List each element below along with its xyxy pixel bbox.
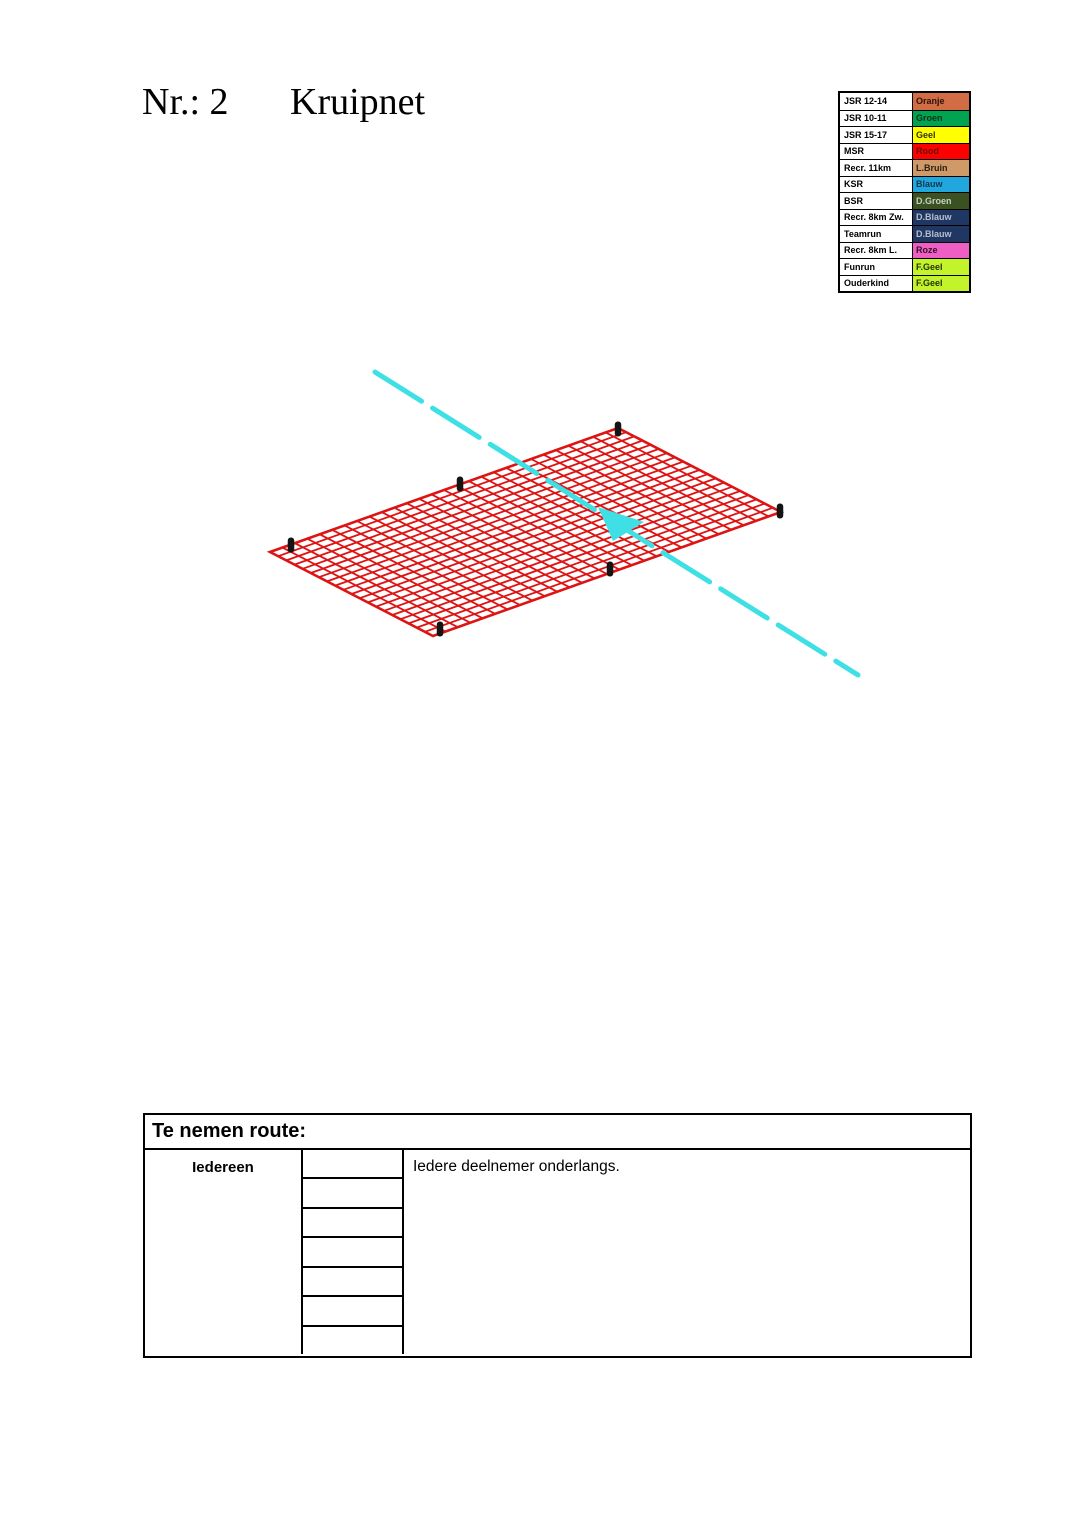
course-diagram bbox=[250, 340, 890, 700]
legend-color-swatch: Groen bbox=[913, 111, 969, 127]
legend-color-swatch: F.Geel bbox=[913, 259, 969, 275]
legend-category-label: BSR bbox=[840, 193, 913, 209]
net-grid bbox=[270, 428, 781, 636]
legend-category-label: KSR bbox=[840, 177, 913, 193]
legend-row: OuderkindF.Geel bbox=[840, 275, 969, 292]
route-color-cell bbox=[303, 1179, 402, 1208]
route-color-cell bbox=[303, 1297, 402, 1326]
legend-row: TeamrunD.Blauw bbox=[840, 225, 969, 242]
legend-category-label: MSR bbox=[840, 144, 913, 160]
legend-row: KSRBlauw bbox=[840, 176, 969, 193]
net-post-icon bbox=[777, 504, 784, 519]
legend-row: FunrunF.Geel bbox=[840, 258, 969, 275]
route-color-cell bbox=[303, 1238, 402, 1267]
legend-row: JSR 10-11Groen bbox=[840, 110, 969, 127]
legend-color-swatch: Roze bbox=[913, 243, 969, 259]
legend-color-swatch: D.Blauw bbox=[913, 210, 969, 226]
net-post-icon bbox=[457, 477, 464, 492]
route-color-cell bbox=[303, 1327, 402, 1354]
net-post-icon bbox=[437, 622, 444, 637]
route-color-cell bbox=[303, 1209, 402, 1238]
legend-row: Recr. 11kmL.Bruin bbox=[840, 159, 969, 176]
legend-category-label: Recr. 11km bbox=[840, 160, 913, 176]
legend-category-label: Ouderkind bbox=[840, 276, 913, 292]
legend-category-label: JSR 10-11 bbox=[840, 111, 913, 127]
net-post-icon bbox=[607, 562, 614, 577]
route-description: Iedere deelnemer onderlangs. bbox=[404, 1150, 970, 1354]
net-post-icon bbox=[288, 538, 295, 553]
legend-row: Recr. 8km L.Roze bbox=[840, 242, 969, 259]
legend-color-swatch: D.Blauw bbox=[913, 226, 969, 242]
legend-category-label: Funrun bbox=[840, 259, 913, 275]
legend-category-label: JSR 15-17 bbox=[840, 127, 913, 143]
legend-row: MSRRood bbox=[840, 143, 969, 160]
legend-category-label: JSR 12-14 bbox=[840, 93, 913, 110]
legend-color-swatch: D.Groen bbox=[913, 193, 969, 209]
legend-color-swatch: F.Geel bbox=[913, 276, 969, 292]
route-table-body: Iedereen Iedere deelnemer onderlangs. bbox=[145, 1150, 970, 1354]
route-color-cells-column bbox=[303, 1150, 404, 1354]
obstacle-name: Kruipnet bbox=[290, 80, 425, 124]
route-color-cell bbox=[303, 1268, 402, 1297]
legend-category-label: Recr. 8km L. bbox=[840, 243, 913, 259]
legend-color-swatch: L.Bruin bbox=[913, 160, 969, 176]
legend-color-swatch: Blauw bbox=[913, 177, 969, 193]
legend-category-label: Recr. 8km Zw. bbox=[840, 210, 913, 226]
net-post-icon bbox=[615, 422, 622, 437]
legend-row: JSR 12-14Oranje bbox=[840, 93, 969, 110]
route-table: Te nemen route: Iedereen Iedere deelneme… bbox=[143, 1113, 972, 1358]
legend-category-label: Teamrun bbox=[840, 226, 913, 242]
route-participant: Iedereen bbox=[145, 1150, 303, 1354]
legend-row: Recr. 8km Zw.D.Blauw bbox=[840, 209, 969, 226]
legend-row: JSR 15-17Geel bbox=[840, 126, 969, 143]
obstacle-sheet-page: Nr.: 2 Kruipnet JSR 12-14OranjeJSR 10-11… bbox=[0, 0, 1080, 1527]
legend-color-swatch: Oranje bbox=[913, 93, 969, 110]
legend-row: BSRD.Groen bbox=[840, 192, 969, 209]
legend-color-swatch: Rood bbox=[913, 144, 969, 160]
legend-color-swatch: Geel bbox=[913, 127, 969, 143]
category-color-legend: JSR 12-14OranjeJSR 10-11GroenJSR 15-17Ge… bbox=[838, 91, 971, 293]
route-table-header: Te nemen route: bbox=[145, 1115, 970, 1150]
obstacle-number: Nr.: 2 bbox=[142, 80, 229, 124]
route-color-cell bbox=[303, 1150, 402, 1179]
